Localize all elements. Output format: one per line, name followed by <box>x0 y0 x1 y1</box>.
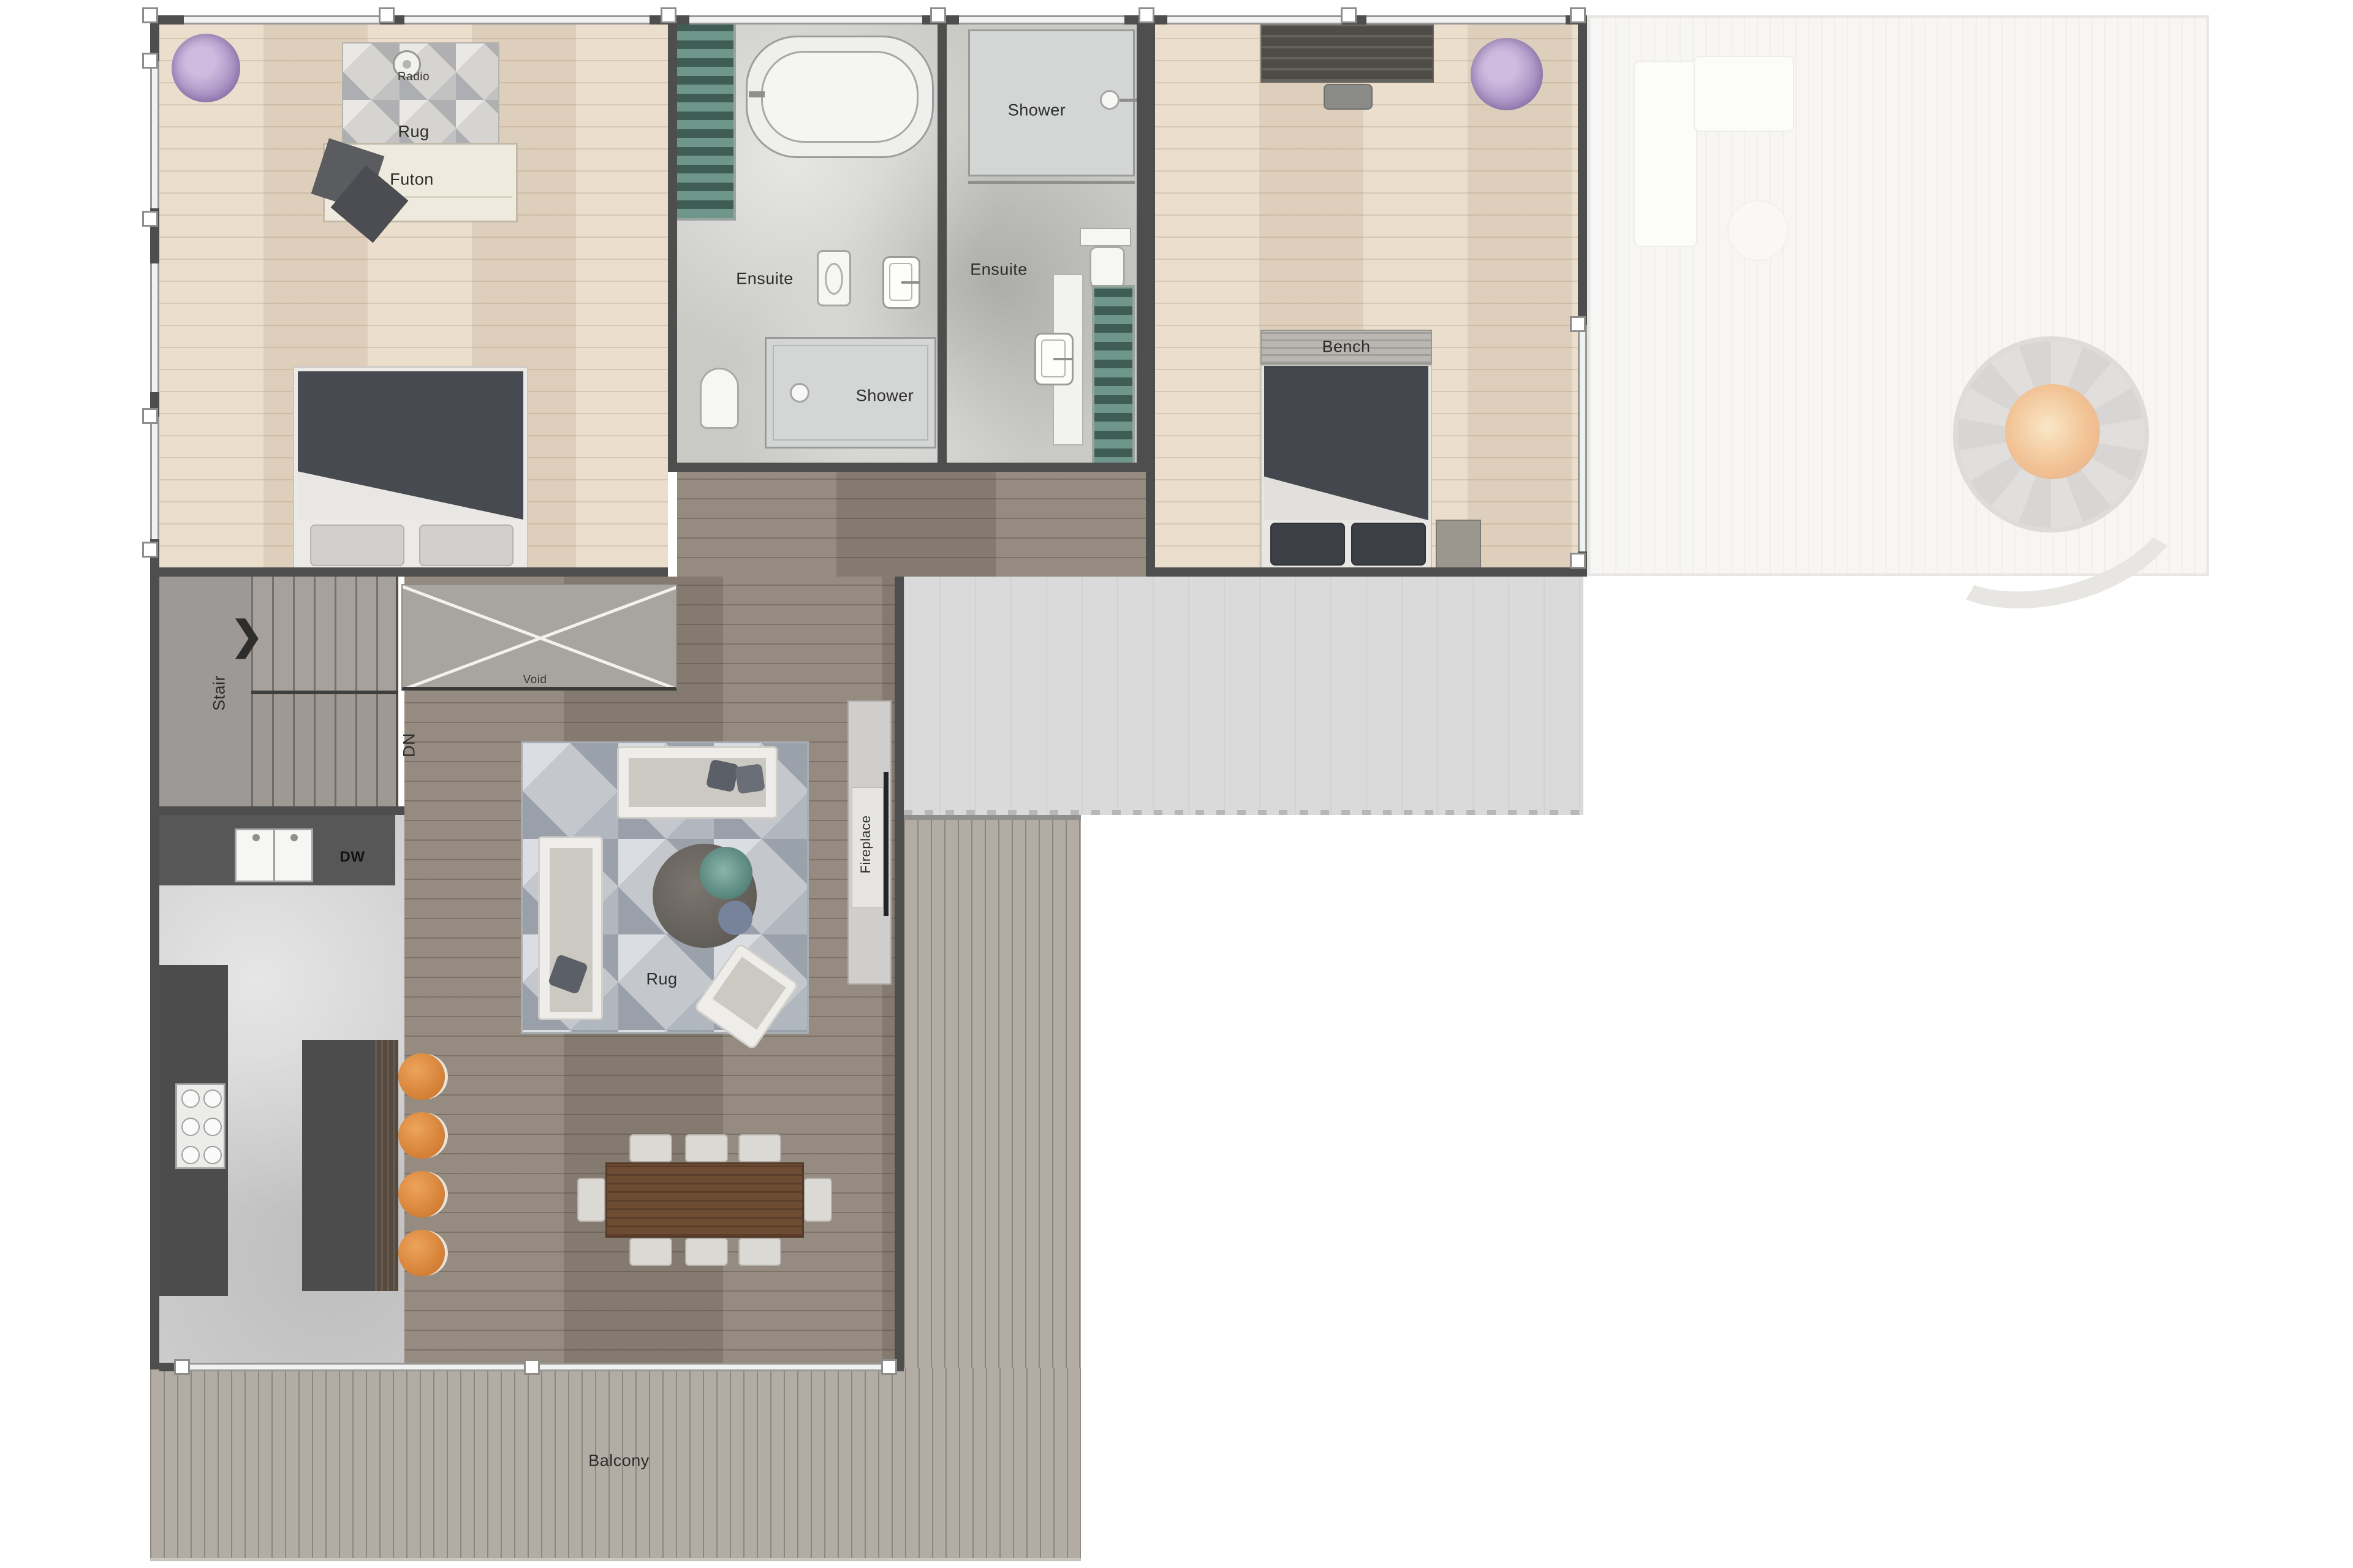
label-stair: Stair <box>210 675 229 711</box>
basin <box>825 263 843 295</box>
fire-pit <box>1953 336 2149 532</box>
wall-stair-kitchen <box>150 806 404 815</box>
wall-post <box>1570 316 1586 332</box>
label-dn: DN <box>400 733 419 757</box>
armchair-seat <box>713 956 786 1029</box>
window <box>150 417 159 539</box>
burner <box>203 1089 222 1108</box>
wall-post <box>1341 7 1357 23</box>
window <box>689 15 922 25</box>
dining-chair <box>629 1134 672 1162</box>
terrace-edge-ticks <box>904 810 1583 815</box>
mirror-cabinet-left <box>882 256 920 309</box>
floor-plan: ❯ <box>0 0 2353 1568</box>
burner <box>181 1089 200 1108</box>
burner <box>181 1118 200 1136</box>
radio-dial <box>403 60 411 69</box>
bed-2 <box>1260 365 1432 573</box>
dining-chair <box>804 1178 832 1222</box>
label-living-rug: Rug <box>646 970 677 989</box>
window <box>404 15 650 25</box>
sink-left-ensuite <box>817 250 851 306</box>
balcony-strip-divider <box>904 815 1081 820</box>
wall-post <box>661 7 676 23</box>
sofa-left <box>538 836 603 1020</box>
shower-head-icon <box>790 383 809 403</box>
dining-chair <box>577 1178 605 1222</box>
toilet-left-ensuite <box>700 368 739 429</box>
shower-head-icon <box>1100 90 1120 110</box>
window <box>150 61 159 208</box>
sofa-pillow <box>735 763 765 794</box>
burner <box>181 1146 200 1164</box>
towel-shelf-right <box>1092 285 1135 469</box>
label-void: Void <box>523 673 547 687</box>
shower-arm <box>1120 99 1137 102</box>
window <box>1167 15 1342 25</box>
stair-upper-flight <box>251 577 398 691</box>
stair-lower-flight <box>251 694 398 806</box>
label-ensuite-left: Ensuite <box>736 270 794 289</box>
window <box>184 15 380 25</box>
label-balcony: Balcony <box>588 1452 650 1471</box>
bed2-pillow <box>1351 523 1426 566</box>
label-ensuite-right: Ensuite <box>970 260 1028 279</box>
deck-side-table <box>1727 200 1789 261</box>
dining-table <box>605 1162 804 1238</box>
fireplace-slot <box>884 772 889 916</box>
bed1-pillow <box>310 525 404 566</box>
stair-landing <box>159 577 251 806</box>
desk <box>1260 25 1434 83</box>
plant-icon <box>172 34 240 102</box>
towel-shelf-left <box>671 18 736 221</box>
wall-bathroom-right <box>1137 15 1146 472</box>
sink-faucet-left <box>252 834 260 841</box>
window <box>1366 15 1566 25</box>
shower-glass-partition <box>968 181 1135 184</box>
wall-post <box>930 7 946 23</box>
balcony-side-strip <box>904 820 1081 1368</box>
mirror-handle <box>901 281 920 284</box>
wall-post <box>379 7 395 23</box>
wall-bathroom-left <box>668 15 677 472</box>
burner <box>203 1118 222 1136</box>
sofa-top <box>617 746 778 819</box>
terrace-floor <box>904 577 1583 815</box>
dining-chair <box>685 1238 728 1266</box>
wall-bathroom-mid <box>938 15 947 472</box>
bathtub-faucet <box>749 91 765 97</box>
nightstand <box>1436 520 1481 570</box>
bed1-pillow <box>419 525 513 566</box>
wall-bathroom-bottom <box>668 463 1146 472</box>
stair-arrow-icon: ❯ <box>230 613 263 659</box>
label-dishwasher: DW <box>340 849 365 866</box>
bar-stool <box>398 1171 445 1218</box>
sofa-pillow <box>706 759 740 793</box>
desk-chair <box>1324 84 1373 110</box>
bar-stool <box>398 1230 445 1276</box>
wall-post <box>142 7 158 23</box>
label-shower-right: Shower <box>1008 101 1066 120</box>
label-bedroom1-rug: Rug <box>398 123 429 142</box>
wall-post <box>142 211 158 227</box>
sink-divider <box>273 830 275 881</box>
wall-post <box>524 1359 540 1375</box>
dining-chair <box>738 1238 781 1266</box>
table-decor <box>718 901 752 935</box>
wall-post <box>881 1359 897 1375</box>
kitchen-island-wood-top <box>375 1040 398 1291</box>
burner <box>203 1146 222 1164</box>
deck-sofa-back <box>1634 61 1697 247</box>
window <box>959 15 1124 25</box>
label-futon: Futon <box>390 170 434 189</box>
dining-chair <box>685 1134 728 1162</box>
wall-living-right <box>895 577 904 1369</box>
outdoor-deck <box>1587 15 2209 576</box>
fire-icon <box>2005 384 2100 479</box>
bar-stool <box>398 1112 445 1159</box>
deck-sofa-seat <box>1694 56 1794 132</box>
bathtub-basin <box>761 51 919 143</box>
wall-post <box>1570 553 1586 569</box>
window <box>150 263 159 392</box>
bar-stool <box>398 1053 445 1100</box>
toilet-right-ensuite-tank <box>1080 228 1131 246</box>
dining-chair <box>738 1134 781 1162</box>
kitchen-sink <box>235 828 313 882</box>
wall-post <box>1570 7 1586 23</box>
bed2-pillow <box>1270 523 1345 566</box>
wall-post <box>142 408 158 424</box>
mirror-cabinet-right <box>1034 333 1074 385</box>
window <box>1578 325 1587 551</box>
wall-post <box>142 53 158 69</box>
table-plant-icon <box>700 847 752 900</box>
label-radio: Radio <box>398 70 430 84</box>
label-bench: Bench <box>1322 338 1370 357</box>
wall-post <box>142 542 158 558</box>
wall-bedroom2-left <box>1146 15 1155 577</box>
sink-faucet-right <box>290 834 298 841</box>
wall-post <box>174 1359 190 1375</box>
mirror-handle <box>1053 358 1073 360</box>
wall-bedroom1-bottom <box>150 567 668 577</box>
wall-post <box>1139 7 1154 23</box>
dining-chair <box>629 1238 672 1266</box>
label-shower-left: Shower <box>856 387 914 406</box>
bed-1 <box>293 366 528 574</box>
bathtub <box>746 36 934 158</box>
hallway-floor <box>677 472 1146 577</box>
wall-bedroom2-bottom <box>1146 567 1587 577</box>
label-fireplace: Fireplace <box>858 816 874 874</box>
plant-icon <box>1471 38 1543 110</box>
cooktop <box>175 1083 225 1169</box>
